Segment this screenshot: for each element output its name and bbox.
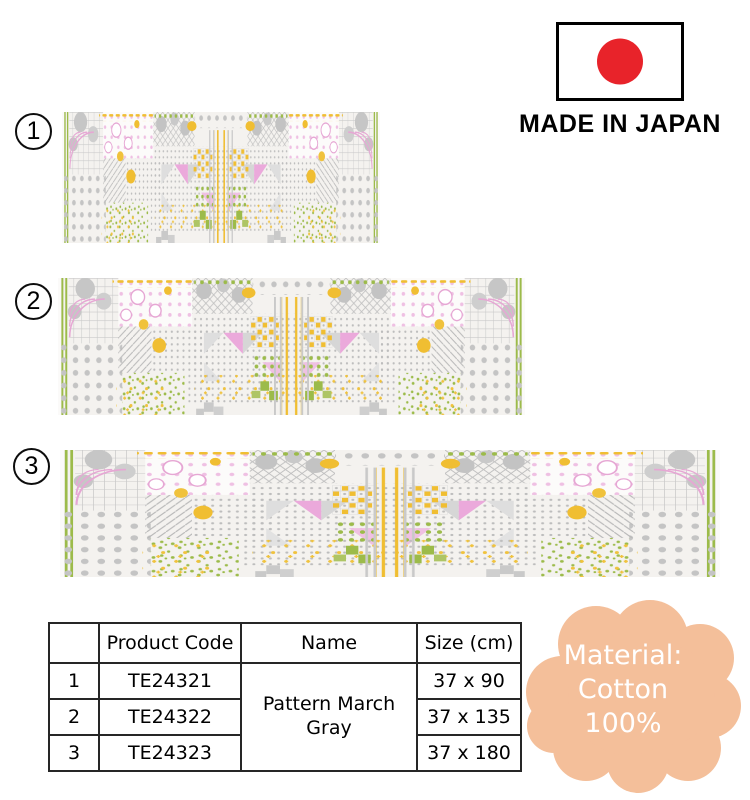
japan-flag-graphic	[559, 25, 681, 98]
header-product-code: Product Code	[99, 623, 241, 663]
material-badge: Material: Cotton 100%	[520, 600, 742, 795]
item-number-2: 2	[15, 283, 52, 320]
made-in-japan-label: MADE IN JAPAN	[498, 110, 742, 139]
material-line-2: Cotton	[578, 674, 668, 705]
header-name: Name	[241, 623, 417, 663]
product-name-cell: Pattern March Gray	[241, 663, 417, 771]
spec-table-row-1: 1 TE24321 Pattern March Gray 37 x 90	[49, 663, 521, 699]
fabric-swatch-2	[58, 278, 525, 415]
row1-size: 37 x 90	[417, 663, 521, 699]
row3-size: 37 x 180	[417, 735, 521, 771]
row3-product-code: TE24323	[99, 735, 241, 771]
row2-size: 37 x 135	[417, 699, 521, 735]
material-line-1: Material:	[564, 640, 683, 671]
japan-flag-icon	[556, 22, 684, 101]
japan-flag-sun	[597, 39, 643, 85]
made-in-japan-badge: MADE IN JAPAN	[498, 22, 742, 139]
spec-table: Product Code Name Size (cm) 1 TE24321 Pa…	[48, 622, 522, 772]
row1-product-code: TE24321	[99, 663, 241, 699]
fabric-swatch-3	[60, 450, 720, 577]
item-number-1: 1	[15, 113, 52, 150]
row3-no: 3	[49, 735, 99, 771]
header-index	[49, 623, 99, 663]
fabric-swatch-1	[62, 112, 380, 243]
material-line-3: 100%	[584, 708, 661, 739]
spec-table-header-row: Product Code Name Size (cm)	[49, 623, 521, 663]
item-number-3: 3	[13, 448, 50, 485]
product-sheet: MADE IN JAPAN 1 2 3 Product Code Name Si…	[0, 0, 750, 800]
row2-product-code: TE24322	[99, 699, 241, 735]
header-size: Size (cm)	[417, 623, 521, 663]
row2-no: 2	[49, 699, 99, 735]
row1-no: 1	[49, 663, 99, 699]
